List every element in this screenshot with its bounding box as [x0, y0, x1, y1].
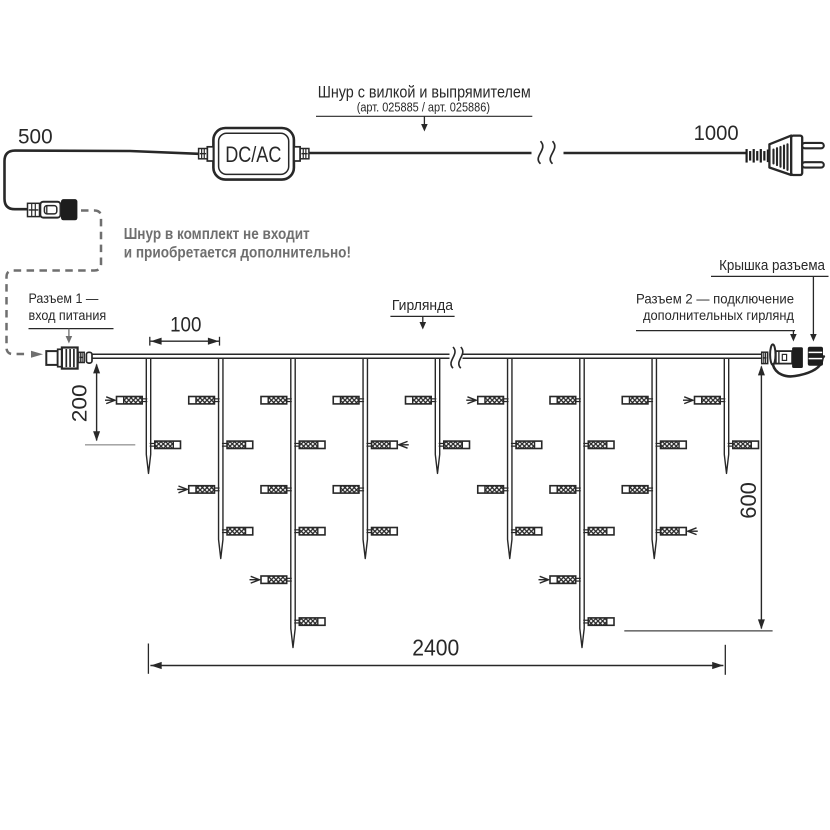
svg-text:и приобретается дополнительно!: и приобретается дополнительно! [124, 244, 351, 261]
svg-text:DC/AC: DC/AC [225, 142, 281, 167]
svg-text:2400: 2400 [412, 634, 459, 660]
svg-text:1000: 1000 [694, 121, 739, 145]
svg-text:дополнительных гирлянд: дополнительных гирлянд [643, 307, 794, 323]
svg-text:Крышка разъема: Крышка разъема [719, 258, 826, 274]
svg-text:500: 500 [18, 125, 53, 149]
svg-text:Разъем 2 — подключение: Разъем 2 — подключение [636, 291, 794, 307]
svg-text:100: 100 [170, 314, 201, 337]
svg-text:Разъем 1 —: Разъем 1 — [29, 290, 99, 306]
svg-text:Шнур с вилкой и выпрямителем: Шнур с вилкой и выпрямителем [318, 82, 531, 101]
svg-text:Гирлянда: Гирлянда [392, 297, 454, 314]
svg-text:Шнур в комплект не входит: Шнур в комплект не входит [124, 226, 310, 243]
svg-text:600: 600 [736, 482, 761, 519]
svg-text:вход питания: вход питания [29, 307, 107, 323]
svg-text:(арт. 025885 / арт. 025886): (арт. 025885 / арт. 025886) [357, 100, 490, 114]
svg-text:200: 200 [69, 384, 92, 422]
